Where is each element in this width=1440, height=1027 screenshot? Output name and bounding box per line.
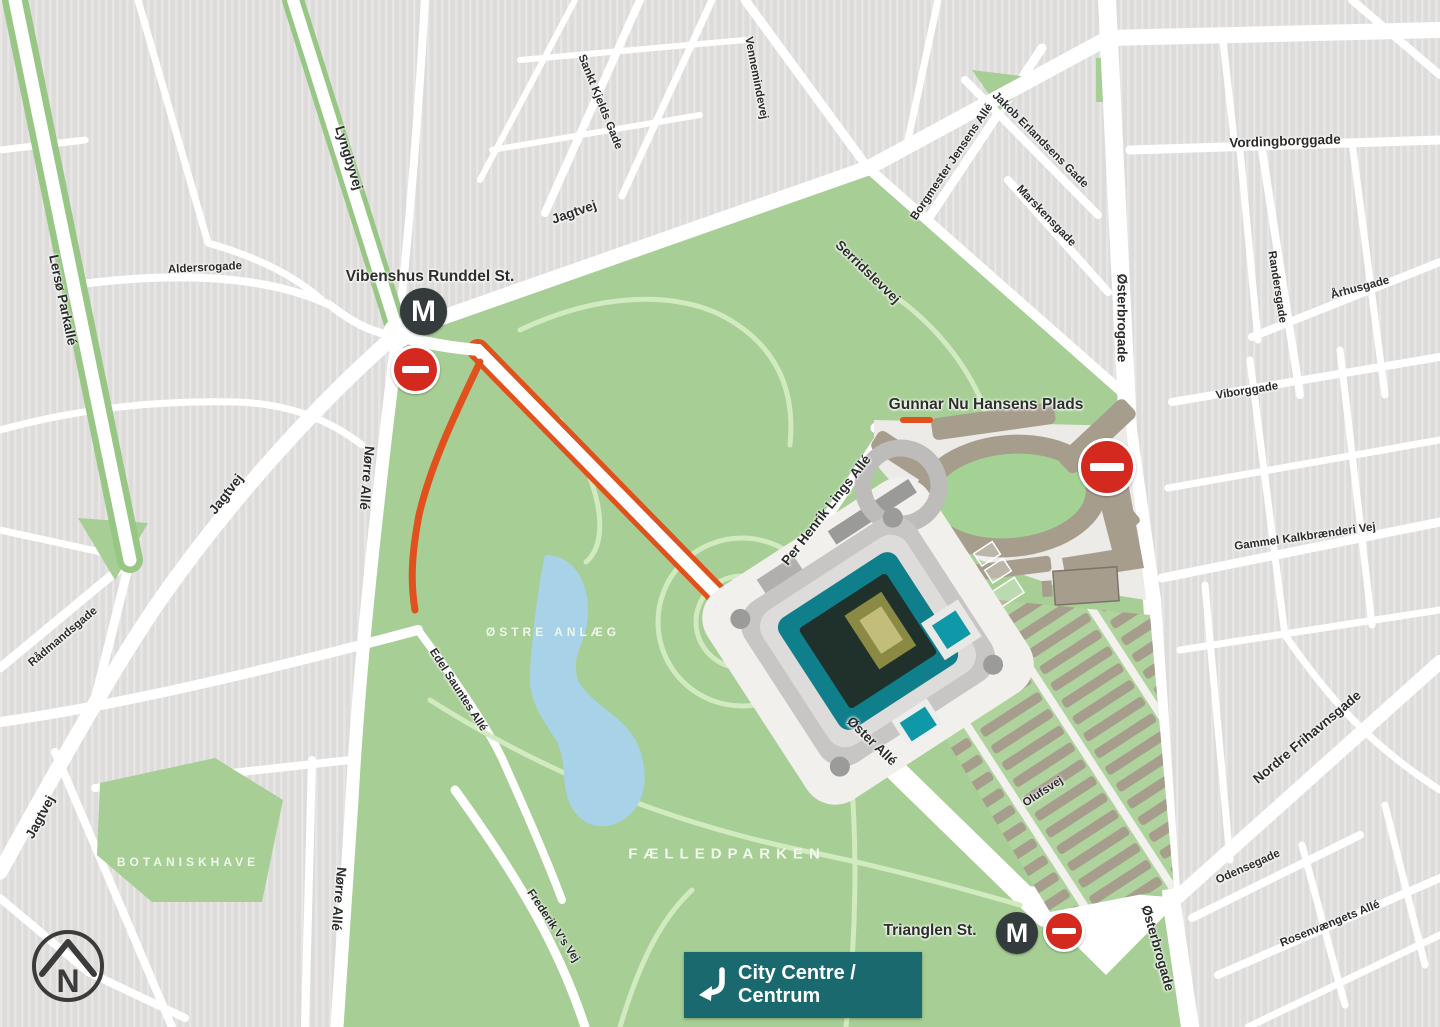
north-arrow-compass: N [30, 928, 106, 1004]
event-map-canvas: Lersø ParkalléLyngbyvejAldersrogadeJagtv… [0, 0, 1440, 1027]
no-entry-bar [402, 366, 430, 373]
metro-icon-vibenshus: M [400, 288, 447, 335]
compass-letter: N [56, 963, 79, 999]
compass-icon: N [30, 928, 106, 1004]
metro-icon-trianglen: M [996, 912, 1038, 954]
no-entry-bar [1090, 463, 1123, 472]
city-centre-direction-box: City Centre / Centrum [684, 952, 922, 1018]
metro-letter: M [411, 295, 436, 329]
metro-letter: M [1006, 918, 1029, 949]
no-entry-icon-trianglen [1043, 910, 1085, 952]
no-entry-bar [1052, 928, 1075, 934]
bent-arrow-down-left-icon [698, 966, 728, 1004]
no-entry-icon-vibenshus [391, 345, 440, 394]
no-entry-icon-stadium [1078, 438, 1136, 496]
map-geometry [0, 0, 1440, 1027]
city-centre-line2: Centrum [738, 985, 856, 1008]
city-centre-line1: City Centre / [738, 962, 856, 985]
